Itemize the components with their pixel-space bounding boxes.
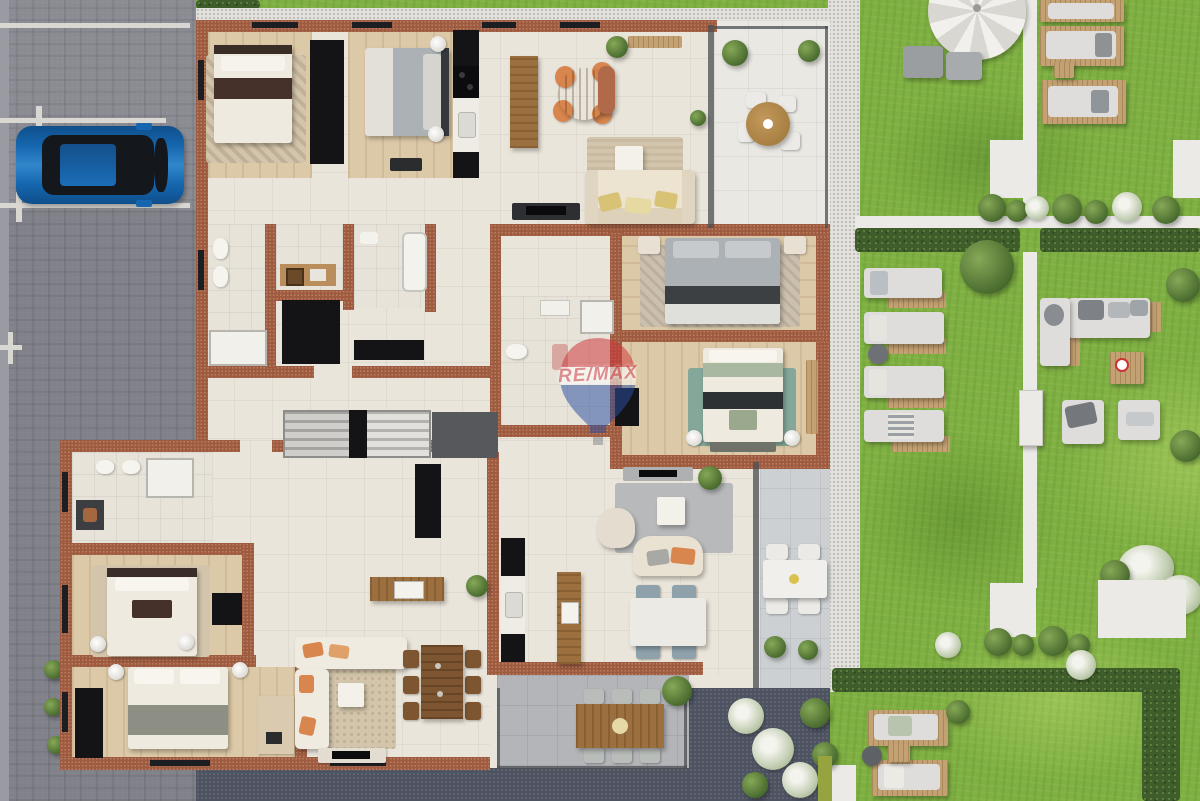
bush (1166, 268, 1200, 302)
window (62, 472, 68, 512)
window (150, 760, 210, 766)
sofa-pillow (624, 197, 651, 215)
car-mirror (136, 200, 152, 207)
sofa (585, 170, 695, 224)
sofa-pillow (299, 675, 314, 693)
lounger-pillow (869, 369, 887, 395)
sofa-pillow (646, 549, 670, 567)
potted-plant (690, 110, 706, 126)
kitchen-island (557, 572, 581, 664)
glass-balustrade (497, 766, 687, 769)
potted-plant (798, 40, 820, 62)
terrace-chair (584, 748, 604, 763)
garden-gate (1019, 390, 1043, 446)
terrace-chair (640, 689, 660, 704)
grass-patch (818, 756, 832, 801)
indoor-plant (466, 575, 488, 597)
bush (1052, 194, 1082, 224)
kitchen-sink (505, 592, 523, 618)
dining-chair (465, 650, 481, 668)
dining-chair (403, 702, 419, 720)
wall (60, 543, 254, 555)
tv (526, 206, 566, 215)
kitchen-island (370, 577, 444, 601)
tv-bench (318, 748, 386, 763)
bed-pillows (221, 56, 285, 71)
toilet (96, 460, 114, 474)
coffee-table (338, 683, 364, 707)
sofa-pillow (670, 547, 696, 565)
vanity (76, 500, 104, 530)
bush (978, 194, 1006, 222)
window (62, 692, 68, 732)
glass-partition (753, 462, 759, 688)
wardrobe-shelf (806, 360, 818, 434)
dining-chair (403, 676, 419, 694)
hedge (832, 668, 1180, 692)
flower-bush (1066, 650, 1096, 680)
bush (984, 628, 1012, 656)
stair-divider (349, 410, 367, 458)
sofa-pillow (654, 190, 678, 210)
coffee-table (615, 146, 643, 172)
hedge (1142, 688, 1180, 801)
potted-plant (722, 40, 748, 66)
pouf (868, 344, 888, 364)
bidet (122, 460, 140, 474)
armchair (597, 508, 635, 548)
parking-line (0, 23, 190, 28)
wardrobe (415, 464, 441, 538)
double-bed (665, 238, 780, 324)
burner (467, 84, 473, 90)
terrace-dining-table (576, 704, 664, 748)
double-bed (703, 348, 783, 442)
kitchen-sink (458, 112, 476, 138)
glass-balustrade (825, 26, 828, 228)
lounger-pillow (1095, 33, 1112, 57)
bedside-lamp (686, 430, 702, 446)
bed-runner (128, 705, 228, 735)
dining-chair (403, 650, 419, 668)
window (198, 250, 204, 290)
bush (1084, 200, 1108, 224)
floor-plan-render: RE/MAX (0, 0, 1200, 801)
vanity (280, 264, 336, 286)
vessel-sink (83, 508, 97, 522)
side-table (1054, 62, 1074, 78)
terracotta-pot (598, 66, 615, 114)
tv-unit (212, 593, 242, 625)
bed-sheet (365, 48, 393, 136)
sofa-pillow (1108, 302, 1130, 318)
cooktop (453, 66, 479, 98)
gravel-border (828, 0, 860, 692)
stair-flight (367, 412, 429, 456)
bush (1152, 196, 1180, 224)
flower-bush (1025, 196, 1049, 220)
wall (196, 366, 314, 378)
sofa (633, 536, 703, 576)
kitchen-island (510, 56, 538, 148)
dresser-decor (266, 732, 282, 744)
double-bed (365, 48, 449, 136)
lounge-chair (903, 46, 943, 78)
lounger-pillow (1091, 90, 1109, 113)
headboard (107, 568, 197, 577)
bed-pillows (134, 669, 174, 684)
potted-plant (798, 640, 818, 660)
terrace-chair (584, 689, 604, 704)
kitchen-counter (501, 576, 525, 634)
wall (60, 440, 240, 452)
lounger-pillow (869, 315, 887, 341)
vessel-sink (286, 268, 304, 286)
tv (639, 470, 677, 477)
table-decor (435, 663, 441, 669)
dresser (258, 696, 294, 754)
shower (580, 300, 614, 334)
bedside-lamp (430, 36, 446, 52)
sofa-pillow (1130, 300, 1148, 316)
indoor-plant (698, 466, 722, 490)
wall (242, 545, 254, 667)
basin (310, 269, 326, 281)
terrace-table (763, 560, 827, 598)
garden-path (855, 216, 1200, 228)
table-decor (763, 119, 773, 129)
wall (490, 224, 501, 430)
window (198, 60, 204, 100)
lounger-pillow (888, 716, 912, 736)
armchair-pillow (1126, 412, 1154, 426)
toilet (213, 238, 228, 259)
wall (490, 425, 621, 437)
table-decor (612, 718, 628, 734)
tv-sideboard (512, 203, 580, 220)
washbasin (540, 300, 570, 316)
bedside-lamp (178, 634, 194, 650)
parasol-pole (973, 4, 981, 12)
headboard (214, 45, 292, 54)
tv-sideboard (623, 467, 693, 481)
tv (332, 751, 370, 759)
side-table (888, 744, 910, 762)
wardrobe (75, 688, 103, 758)
terrace-chair (640, 748, 660, 763)
glass-balustrade (497, 688, 500, 768)
kitchen-sink (561, 602, 579, 624)
washbasin (360, 232, 378, 244)
kitchen-cabinet (501, 538, 525, 576)
car-windshield (154, 138, 168, 192)
potted-plant (764, 636, 786, 658)
wall (487, 662, 703, 675)
bush (946, 700, 970, 724)
terrace-chair (766, 598, 788, 614)
parking-line-t (8, 332, 13, 364)
window (482, 22, 516, 28)
window (560, 22, 600, 28)
window (252, 22, 298, 28)
stair-void (432, 412, 498, 458)
wall (487, 452, 499, 674)
sofa-chaise (295, 669, 329, 749)
bed-bench (710, 442, 776, 452)
kitchen-cabinet (501, 634, 525, 662)
table-decor (1117, 360, 1127, 370)
bush (1038, 626, 1068, 656)
bedside-lamp (108, 664, 124, 680)
terrace-chair (612, 748, 632, 763)
bedside-lamp (232, 662, 248, 678)
bush (742, 772, 768, 798)
shower (146, 458, 194, 498)
utility-closet (282, 300, 340, 364)
bed-pillows (673, 241, 719, 258)
table-decor (437, 691, 443, 697)
window (62, 585, 68, 633)
flower-bush (728, 698, 764, 734)
indoor-plant (606, 36, 628, 58)
wall (816, 232, 830, 458)
flower-bush (782, 762, 818, 798)
headboard (441, 48, 449, 136)
bidet (213, 266, 228, 287)
toilet (506, 344, 527, 359)
flower-bush (752, 728, 794, 770)
wall (352, 366, 497, 378)
bed-sheet (665, 304, 780, 324)
dining-chair (465, 676, 481, 694)
sofa (295, 637, 407, 669)
sofa-arm (682, 170, 695, 224)
kitchen-cabinet (453, 30, 479, 66)
bed-throw (132, 600, 172, 618)
stone-patio (990, 140, 1036, 198)
shower (209, 330, 267, 366)
sofa-pillow (298, 716, 316, 737)
bush (800, 698, 830, 728)
wall (490, 224, 830, 236)
tv-unit (615, 388, 639, 426)
stone-patio (830, 765, 856, 801)
car-roof (60, 144, 116, 186)
sofa-pillow (328, 644, 350, 660)
wall (60, 757, 490, 770)
glass-partition (708, 25, 714, 228)
sun-lounger (1048, 3, 1114, 19)
dining-table (421, 645, 463, 719)
window (352, 22, 392, 28)
bed-pillows (725, 241, 771, 258)
flower-bush (1112, 192, 1142, 222)
dining-table (630, 598, 706, 646)
wardrobe (310, 40, 344, 164)
bed-runner (665, 286, 780, 304)
hedge (1040, 228, 1200, 252)
lounger-pillow (870, 271, 888, 295)
bed-runner (703, 363, 783, 377)
kitchen-sink (394, 581, 424, 599)
slat-bench (628, 36, 682, 48)
bush (1012, 634, 1034, 656)
bed-pillows (180, 669, 220, 684)
terrace-chair (766, 544, 788, 560)
bath-mat (552, 344, 568, 370)
sofa-pillow (1044, 304, 1064, 326)
sofa-pillow (1078, 300, 1104, 320)
tree (960, 240, 1014, 294)
double-bed (128, 667, 228, 749)
dining-chair (465, 702, 481, 720)
coffee-table (1110, 352, 1144, 384)
bedside-lamp (784, 430, 800, 446)
bed-runner (703, 392, 783, 409)
bush (662, 676, 692, 706)
sideboard (354, 340, 424, 360)
flower-bush (935, 632, 961, 658)
bed-throw (729, 410, 757, 430)
bathtub (402, 232, 427, 292)
glass-balustrade (714, 26, 828, 29)
nightstand (638, 236, 660, 254)
kitchen-cabinet (453, 152, 479, 178)
pouf (862, 746, 882, 766)
burner (459, 72, 465, 78)
nightstand (784, 236, 806, 254)
bedside-lamp (90, 636, 106, 652)
sofa-arm (585, 170, 598, 224)
kitchen-counter (453, 98, 479, 152)
lounger-pillow (884, 766, 904, 788)
wall (622, 330, 830, 342)
table-decor (789, 574, 799, 584)
lounger-pillow (888, 413, 914, 439)
terrace-chair (798, 598, 820, 614)
stair-flight (285, 412, 349, 456)
bed-runner (214, 78, 292, 99)
bedside-lamp (428, 126, 444, 142)
sofa-pillow (302, 641, 324, 658)
bed-pillows (423, 54, 441, 130)
bed-pillows (115, 578, 189, 591)
staircase (283, 410, 431, 458)
stone-patio (1173, 140, 1200, 198)
bush (1170, 430, 1200, 462)
car (16, 126, 184, 204)
bed-pillows (709, 350, 777, 362)
bed-bench (390, 158, 422, 171)
lounge-chair (946, 52, 982, 80)
car-mirror (136, 123, 152, 130)
stone-patio (1098, 580, 1186, 638)
terrace-chair (798, 544, 820, 560)
terrace-round-table (746, 102, 790, 146)
terrace-chair (612, 689, 632, 704)
coffee-table (657, 497, 685, 525)
double-bed (214, 45, 292, 143)
